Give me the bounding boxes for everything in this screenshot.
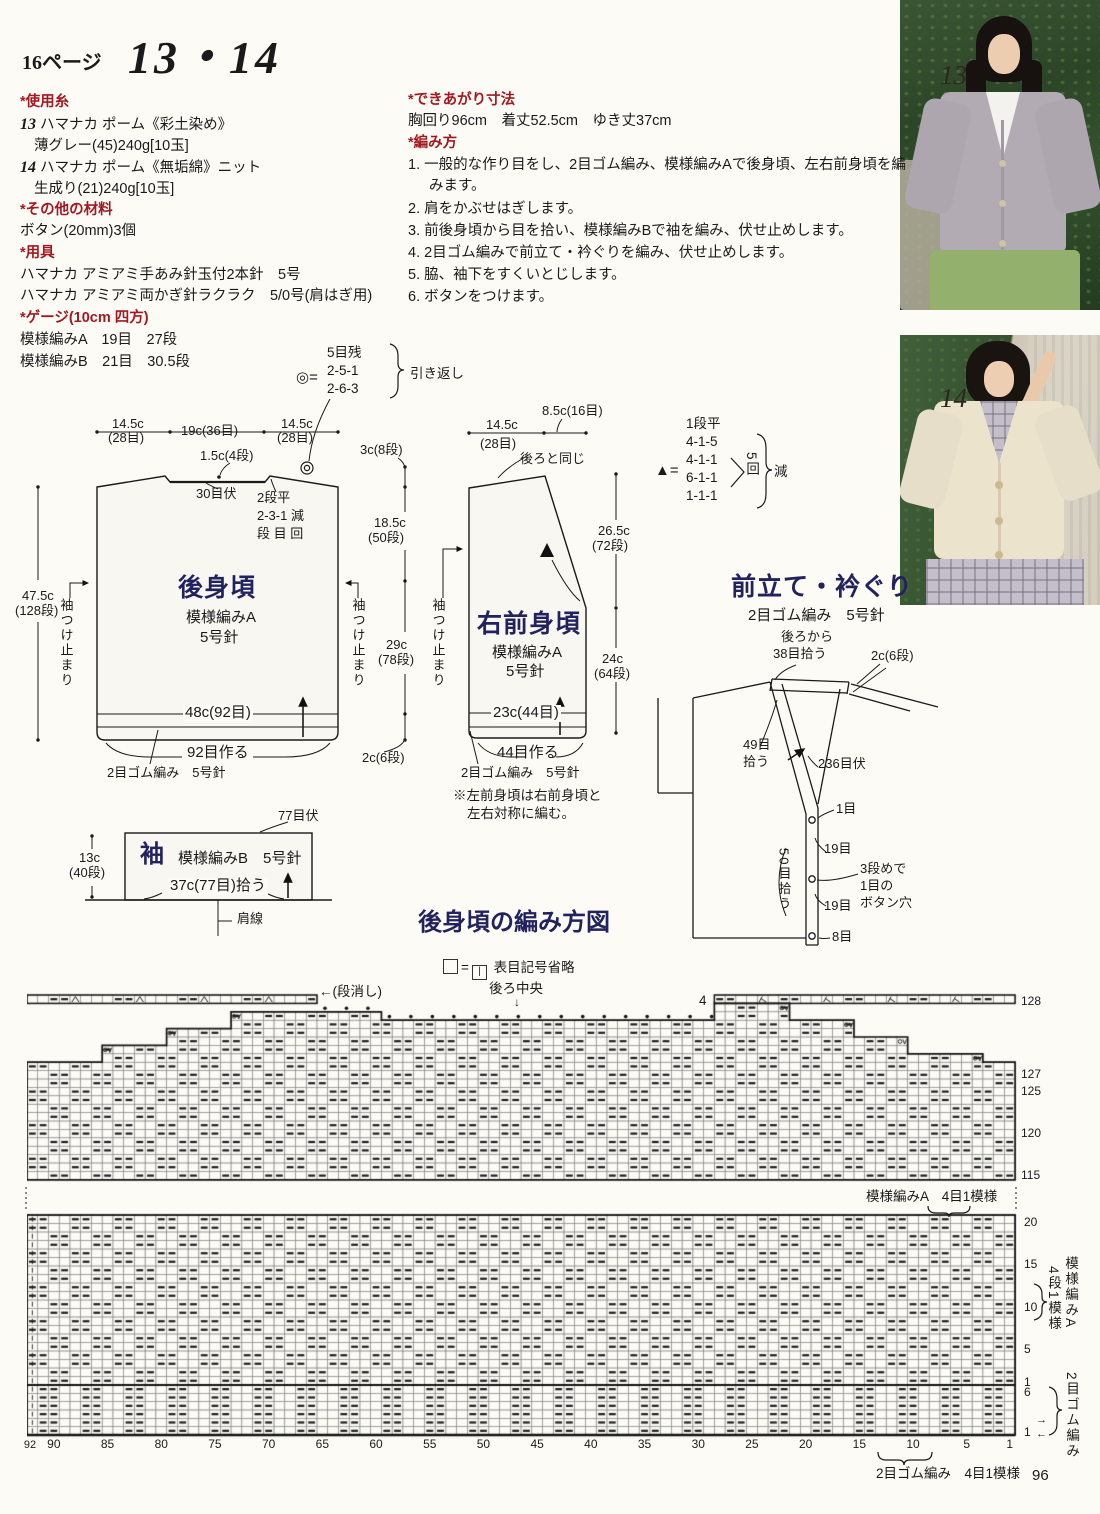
button bbox=[999, 160, 1006, 167]
band-bindoff-236: 236目伏 bbox=[818, 757, 866, 772]
pattern-a-repeat-label: 模様編みA 4目1模様 bbox=[866, 1189, 997, 1204]
stitch-axis-number: 80 bbox=[155, 1438, 168, 1451]
rib-repeat-bottom-label: 2目ゴム編み 4目1模様 bbox=[876, 1466, 1020, 1481]
tool-line-1: ハマナカ アミアミ手あみ針玉付2本針 5号 bbox=[20, 267, 301, 283]
front-mirror-note-2: 左右対称に編む。 bbox=[467, 806, 575, 821]
stitch-axis-number: 65 bbox=[316, 1438, 329, 1451]
stitch-axis-number: 1 bbox=[1006, 1438, 1013, 1451]
sleeve-pickup: 37c(77目)拾う bbox=[168, 878, 268, 895]
stitch-axis-number: 35 bbox=[638, 1438, 651, 1451]
tools-heading: *用具 bbox=[20, 245, 55, 261]
item-numbers-title: 13・14 bbox=[128, 32, 281, 84]
button bbox=[995, 481, 1003, 489]
pattern-a-side-label: 模様編みA bbox=[1063, 1256, 1078, 1329]
stitch-axis-number: 45 bbox=[530, 1438, 543, 1451]
front-bottom-width: 23c(44目) bbox=[491, 705, 561, 722]
gauge-heading: *ゲージ(10cm 四方) bbox=[20, 310, 149, 326]
band-pick-50: 50目拾う bbox=[776, 848, 791, 911]
finished-size-line: 胸回り96cm 着丈52.5cm ゆき丈37cm bbox=[408, 113, 671, 129]
yarn-13-detail: 薄グレー(45)240g[10玉] bbox=[34, 138, 189, 154]
rib-row-number: 6 bbox=[1024, 1386, 1031, 1399]
lower-chart-row-number: 5 bbox=[1024, 1343, 1031, 1356]
back-needle: 5号針 bbox=[200, 630, 238, 647]
stitch-axis-number: 85 bbox=[101, 1438, 114, 1451]
stitch-axis-number: 50 bbox=[477, 1438, 490, 1451]
front-same-as-back: 後ろと同じ bbox=[520, 452, 585, 467]
howto-step-1: 1. 一般的な作り目をし、2目ゴム編み、模様編みAで後身頃、左右前身頃を編みます… bbox=[408, 155, 909, 197]
stitch-axis-number: 15 bbox=[853, 1438, 866, 1451]
back-width-right-sts: (28目) bbox=[277, 431, 313, 446]
back-rib-note: 2目ゴム編み 5号針 bbox=[107, 766, 225, 781]
sleeve-length-rows: (40段) bbox=[69, 866, 105, 881]
stitch-axis-number: 60 bbox=[369, 1438, 382, 1451]
back-neck-bindoff: 30目伏 bbox=[196, 487, 236, 502]
yarn-14-detail: 生成り(21)240g[10玉] bbox=[34, 181, 174, 197]
knit-stitch-symbol: | bbox=[472, 965, 487, 980]
back-measure-18-5c: 18.5c bbox=[372, 516, 408, 531]
other-materials-heading: *その他の材料 bbox=[20, 202, 113, 218]
stitch-axis-number: 25 bbox=[745, 1438, 758, 1451]
band-pick-back-2: 38目拾う bbox=[773, 647, 826, 662]
yarn-14-number: 14 bbox=[20, 159, 36, 176]
sleeve-length: 13c bbox=[79, 851, 100, 866]
back-measure-2c: 2c(6段) bbox=[362, 751, 405, 766]
page-number: 96 bbox=[1032, 1468, 1049, 1485]
band-sub: 2目ゴム編み 5号針 bbox=[748, 608, 885, 625]
yarn-item-14: 14 ハマナカ ポーム《無垢綿》ニット bbox=[20, 159, 261, 177]
howto-step-6: 6. ボタンをつけます。 bbox=[408, 287, 909, 308]
band-title: 前立て・衿ぐり bbox=[731, 573, 913, 601]
band-19st-lower: 19目 bbox=[824, 899, 851, 914]
front-needle: 5号針 bbox=[506, 664, 544, 681]
tri-line-3: 6-1-1 bbox=[686, 470, 718, 485]
upper-chart-row-number: 120 bbox=[1021, 1127, 1041, 1140]
lower-chart-row-number: 15 bbox=[1024, 1258, 1037, 1271]
triangle-symbol: ▲= bbox=[655, 463, 679, 480]
front-width-sts: (28目) bbox=[480, 437, 516, 452]
band-8st: 8目 bbox=[832, 930, 852, 945]
upper-chart-row-number: 125 bbox=[1021, 1085, 1041, 1098]
shoulder-line-label: 肩線 bbox=[237, 912, 263, 927]
photo-number-14: 14 bbox=[940, 383, 967, 414]
turnback-note: 引き返し bbox=[410, 366, 464, 381]
stitch-axis-number: 70 bbox=[262, 1438, 275, 1451]
gauge-line-2: 模様編みB 21目 30.5段 bbox=[20, 354, 190, 370]
band-pick-49-2: 拾う bbox=[743, 755, 769, 770]
direction-arrow-left: ← bbox=[1036, 1428, 1047, 1440]
lower-chart-row-number: 10 bbox=[1024, 1301, 1037, 1314]
yarn-item-13: 13 ハマナカ ポーム《彩土染め》 bbox=[20, 116, 232, 134]
front-width: 14.5c bbox=[486, 418, 518, 433]
sleeve-piece-name: 袖 bbox=[140, 842, 164, 869]
front-measure-64rows: (64段) bbox=[592, 667, 632, 682]
button bbox=[999, 200, 1006, 207]
turnback-line-3: 2-6-3 bbox=[327, 381, 359, 396]
front-rib-note: 2目ゴム編み 5号針 bbox=[461, 766, 579, 781]
back-length: 47.5c bbox=[22, 589, 54, 604]
upper-chart-row-number: 127 bbox=[1021, 1068, 1041, 1081]
stitch-axis-number: 40 bbox=[584, 1438, 597, 1451]
back-stitch-pattern: 模様編みA bbox=[186, 610, 256, 627]
back-neck-width: 19c(36目) bbox=[181, 424, 238, 439]
back-measure-29c: 29c bbox=[384, 638, 409, 653]
back-dec-3: 段 目 回 bbox=[257, 527, 303, 542]
howto-step-4: 4. 2目ゴム編みで前立て・衿ぐりを編み、伏せ止めします。 bbox=[408, 243, 909, 264]
gauge-line-1: 模様編みA 19目 27段 bbox=[20, 332, 177, 348]
back-width-left-sts: (28目) bbox=[108, 431, 144, 446]
rib-row-number: 1 bbox=[1024, 1426, 1031, 1439]
front-measure-24c: 24c bbox=[600, 652, 625, 667]
yarn-13-name: ハマナカ ポーム《彩土染め》 bbox=[40, 117, 232, 133]
back-neck-drop: 1.5c(4段) bbox=[200, 449, 253, 464]
tri-decrease: 減 bbox=[774, 464, 788, 479]
yarn-14-name: ハマナカ ポーム《無垢綿》ニット bbox=[40, 160, 261, 176]
knitting-pattern-page: 13 14 16ページ 13・14 *使用糸 13 ハマナカ ポーム《彩土染め》… bbox=[0, 0, 1100, 1514]
front-cast-on: 44目作る bbox=[497, 745, 559, 762]
four-label: 4 bbox=[699, 993, 707, 1008]
row-elimination-label: ←(段消し) bbox=[319, 984, 382, 999]
page-reference: 16ページ bbox=[22, 52, 102, 74]
back-center-label: 後ろ中央 bbox=[489, 981, 543, 996]
turnback-line-2: 2-5-1 bbox=[327, 363, 359, 378]
photo-model-13: 13 bbox=[900, 0, 1100, 310]
tri-line-4: 1-1-1 bbox=[686, 488, 718, 503]
lower-chart-row-number: 20 bbox=[1024, 1216, 1037, 1229]
stitch-axis-number: 10 bbox=[906, 1438, 919, 1451]
band-1st: 1目 bbox=[836, 802, 856, 817]
howto-step-5: 5. 脇、袖下をすくいとじします。 bbox=[408, 265, 909, 286]
finished-size-heading: *できあがり寸法 bbox=[408, 92, 515, 108]
howto-step-2: 2. 肩をかぶせはぎします。 bbox=[408, 199, 909, 220]
upper-chart-row-number: 128 bbox=[1021, 995, 1041, 1008]
band-buttonhole-2: 1目の bbox=[860, 879, 893, 894]
direction-arrow-right: → bbox=[1036, 1414, 1047, 1426]
model-face bbox=[984, 361, 1014, 397]
sleeve-stop-front: 袖つけ止まり bbox=[430, 598, 445, 688]
back-dec-2: 2-3-1 減 bbox=[257, 509, 304, 524]
tri-times: 5回 bbox=[744, 452, 759, 477]
back-measure-78rows: (78段) bbox=[376, 653, 416, 668]
tri-line-2: 4-1-1 bbox=[686, 452, 718, 467]
sleeve-bindoff: 77目伏 bbox=[278, 809, 318, 824]
chart-key-note: 表目記号省略 bbox=[494, 960, 575, 975]
stitch-axis-number: 90 bbox=[47, 1438, 60, 1451]
band-buttonhole-1: 3段めで bbox=[860, 862, 906, 877]
back-measure-50rows: (50段) bbox=[366, 531, 406, 546]
back-measure-3c: 3c(8段) bbox=[360, 443, 403, 458]
front-piece-name: 右前身頃 bbox=[477, 610, 581, 638]
chart-key: =| 表目記号省略 bbox=[440, 959, 575, 980]
band-buttonhole-3: ボタン穴 bbox=[860, 896, 912, 911]
front-neck-width: 8.5c(16目) bbox=[542, 404, 603, 419]
yarn-13-number: 13 bbox=[20, 116, 36, 133]
front-measure-26-5c: 26.5c bbox=[596, 524, 632, 539]
back-bottom-width: 48c(92目) bbox=[183, 705, 253, 722]
band-pick-back-1: 後ろから bbox=[781, 630, 833, 645]
howto-step-3: 3. 前後身頃から目を拾い、模様編みBで袖を編み、伏せ止めします。 bbox=[408, 221, 909, 242]
sleeve-stop-left: 袖つけ止まり bbox=[58, 598, 73, 688]
tri-line-0: 1段平 bbox=[686, 416, 721, 431]
back-piece-name: 後身頃 bbox=[178, 574, 256, 602]
band-19st-upper: 19目 bbox=[824, 842, 851, 857]
buttons-line: ボタン(20mm)3個 bbox=[20, 223, 136, 239]
back-body-chart-lower bbox=[27, 1213, 1019, 1445]
stitch-axis-number: 30 bbox=[692, 1438, 705, 1451]
plaid-dress-skirt bbox=[926, 559, 1084, 605]
button bbox=[995, 517, 1003, 525]
stitch-axis-number: 75 bbox=[208, 1438, 221, 1451]
stitch-axis-number: 55 bbox=[423, 1438, 436, 1451]
photo-number-13: 13 bbox=[940, 60, 967, 91]
four-row-repeat-label: 4段1模様 bbox=[1046, 1266, 1061, 1332]
yarn-heading: *使用糸 bbox=[20, 94, 69, 110]
back-length-rows: (128段) bbox=[15, 604, 58, 619]
back-center-arrow: ↓ bbox=[514, 996, 520, 1009]
photo-model-14: 14 bbox=[900, 335, 1100, 605]
stitch-axis-number: 20 bbox=[799, 1438, 812, 1451]
rib-side-label: 2目ゴム編み bbox=[1064, 1372, 1079, 1459]
front-stitch-pattern: 模様編みA bbox=[492, 645, 562, 662]
front-mirror-note-1: ※左前身頃は右前身頃と bbox=[453, 788, 602, 803]
tri-line-1: 4-1-5 bbox=[686, 434, 718, 449]
green-skirt bbox=[930, 250, 1080, 310]
back-body-chart-upper bbox=[27, 993, 1019, 1193]
band-pick-49-1: 49目 bbox=[743, 738, 770, 753]
stitch-axis-92: 92 bbox=[24, 1439, 36, 1451]
upper-chart-row-number: 115 bbox=[1021, 1169, 1040, 1182]
front-measure-72rows: (72段) bbox=[590, 539, 630, 554]
button bbox=[995, 551, 1003, 559]
button bbox=[999, 240, 1006, 247]
back-cast-on: 92目作る bbox=[187, 745, 249, 762]
back-dec-1: 2段平 bbox=[257, 491, 290, 506]
sleeve-pattern: 模様編みB 5号針 bbox=[178, 851, 301, 868]
equals: = bbox=[461, 960, 469, 975]
band-measure-2c: 2c(6段) bbox=[871, 649, 914, 664]
sleeve-stop-right: 袖つけ止まり bbox=[350, 598, 365, 688]
chart-title: 後身頃の編み方図 bbox=[418, 910, 610, 937]
turnback-symbol: ◎= bbox=[296, 370, 318, 387]
empty-square-symbol bbox=[443, 959, 458, 974]
tool-line-2: ハマナカ アミアミ両かぎ針ラクラク 5/0号(肩はぎ用) bbox=[20, 288, 372, 304]
stitch-axis-number: 5 bbox=[963, 1438, 970, 1451]
turnback-line-1: 5目残 bbox=[327, 345, 362, 360]
model-face bbox=[988, 34, 1020, 74]
howto-heading: *編み方 bbox=[408, 135, 457, 151]
